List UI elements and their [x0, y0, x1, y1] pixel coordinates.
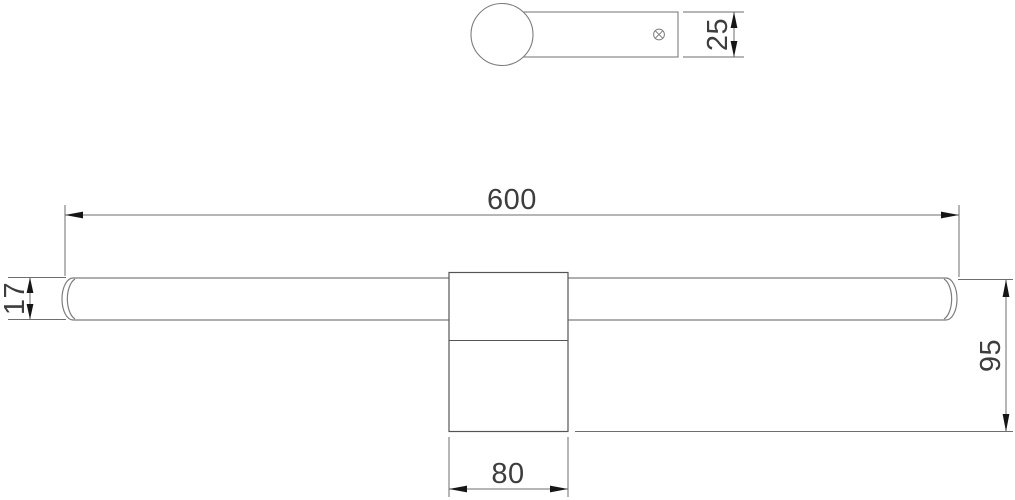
technical-drawing-page: 25 600 — [0, 0, 1015, 500]
dim-bracket-width-label: 80 — [491, 458, 524, 490]
arrow-left-icon — [449, 486, 467, 493]
dim-overall-height-label: 95 — [975, 339, 1007, 372]
arrow-down-icon — [1003, 414, 1010, 432]
dim-tube-diameter: 17 — [0, 278, 66, 320]
side-profile-view: 25 — [471, 4, 744, 66]
front-view: 600 17 95 — [0, 184, 1013, 497]
dim-overall-length: 600 — [65, 184, 959, 277]
mount-bracket — [449, 273, 568, 432]
dim-overall-length-label: 600 — [487, 184, 537, 216]
dim-arm-depth: 25 — [683, 12, 744, 57]
arrow-right-icon — [550, 486, 568, 493]
arrow-right-icon — [941, 212, 959, 219]
dim-tube-diameter-label: 17 — [0, 282, 31, 315]
tube-end-circle — [471, 4, 533, 66]
dim-arm-depth-label: 25 — [702, 18, 734, 51]
arrow-left-icon — [65, 212, 83, 219]
dim-bracket-width: 80 — [449, 437, 568, 497]
arrow-up-icon — [1003, 280, 1010, 298]
wall-light-dimension-drawing: 25 600 — [0, 0, 1015, 500]
